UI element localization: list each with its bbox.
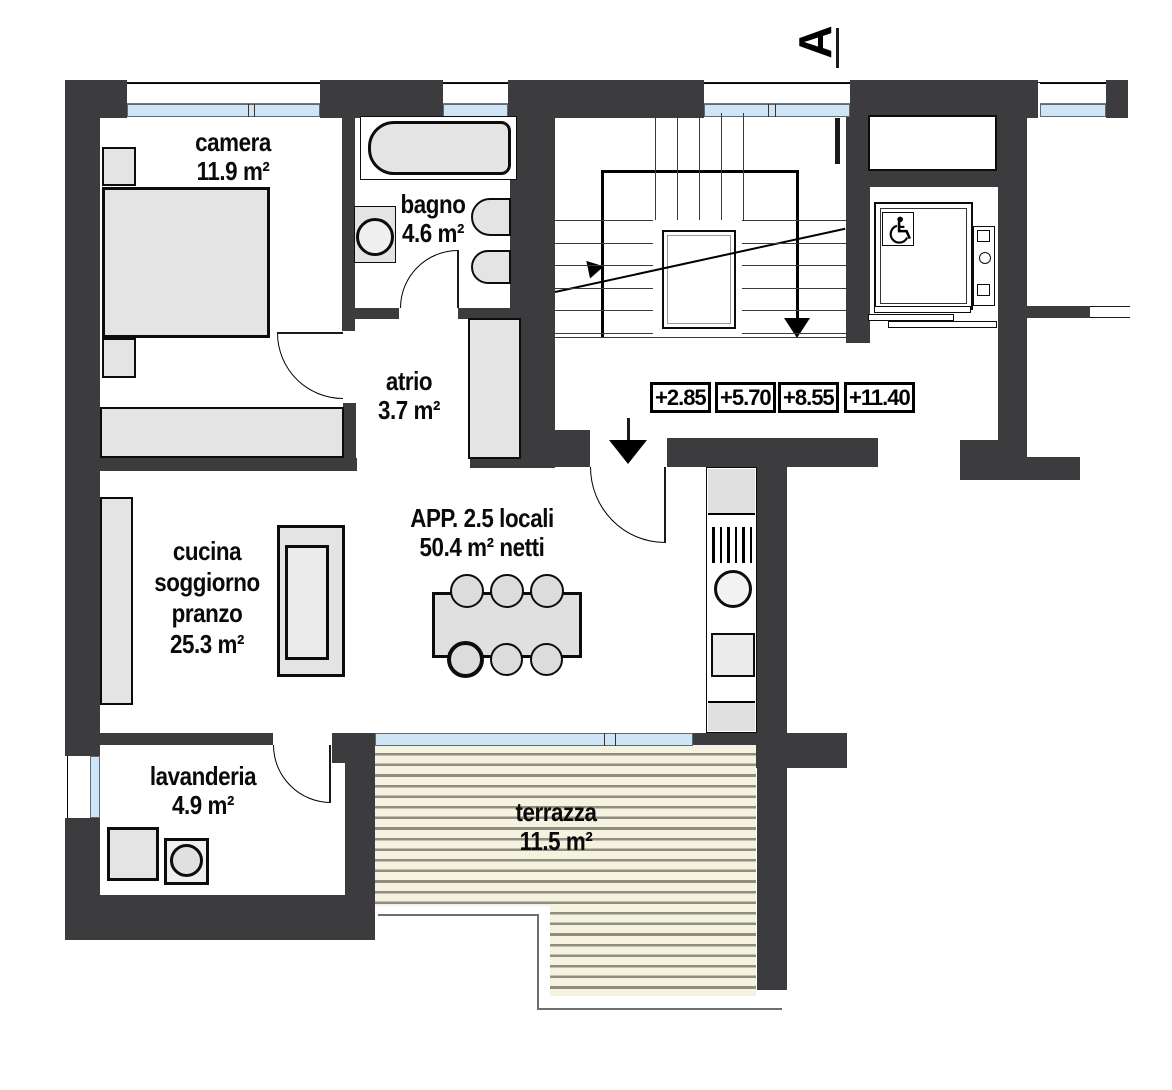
wheelchair-icon: [884, 214, 912, 244]
wall: [868, 170, 995, 187]
wall: [667, 438, 878, 467]
stair-tread: [555, 220, 653, 221]
section-line: [835, 118, 840, 164]
wall: [1027, 457, 1080, 480]
window-terrace-glass: [375, 733, 693, 746]
level-badge: +5.70: [715, 382, 776, 413]
door-arc-entrance: [590, 467, 665, 543]
room-name: bagno: [401, 190, 466, 219]
dresser-bench: [100, 407, 344, 458]
chair: [450, 574, 484, 608]
dryer: [107, 827, 159, 881]
room-label-terrazza: terrazza 11.5 m²: [515, 798, 596, 856]
nightstand: [102, 147, 136, 186]
window-lavanderia: [67, 756, 90, 818]
section-line: [836, 28, 839, 68]
stair-tread: [742, 310, 850, 311]
room-area: 25.3 m²: [154, 629, 259, 660]
stair-tread: [699, 113, 700, 220]
door-leaf-camera: [277, 332, 343, 334]
room-label-cucina: cucina soggiorno pranzo 25.3 m²: [154, 536, 259, 660]
door-leaf-lavanderia: [329, 745, 331, 803]
sofa-seat: [285, 545, 329, 660]
elevator-door-panel: [888, 321, 997, 328]
nightstand: [102, 338, 136, 378]
stair-void-inner: [667, 235, 731, 324]
terrace-deck: [375, 745, 756, 996]
room-name: pranzo: [154, 598, 259, 629]
room-area: 4.6 m²: [401, 219, 466, 248]
kitchen-appliance: [708, 469, 755, 515]
window-camera: [127, 83, 320, 104]
chair: [530, 643, 563, 676]
room-area: 11.9 m²: [195, 157, 271, 186]
apartment-title: APP. 2.5 locali: [410, 504, 554, 533]
door-leaf-entrance: [664, 467, 666, 543]
window-bagno: [443, 83, 508, 104]
room-name: atrio: [378, 367, 440, 396]
chair: [530, 574, 564, 608]
stair-path-line: [796, 170, 799, 322]
wall: [1106, 80, 1128, 118]
apartment-label: APP. 2.5 locali 50.4 m² netti: [410, 504, 554, 562]
wall: [343, 403, 356, 459]
cabinet: [100, 497, 133, 705]
window-top-right-glass: [1040, 104, 1106, 117]
toilet: [471, 198, 511, 236]
door-arc-lavanderia: [273, 745, 331, 803]
stair-tread: [555, 310, 653, 311]
stair-tread: [555, 333, 653, 334]
washbasin: [356, 218, 394, 256]
level-badge: +8.55: [778, 382, 839, 413]
kitchen-hob: [711, 633, 755, 677]
level-value: +11.40: [849, 385, 910, 410]
level-badge: +11.40: [844, 382, 915, 413]
room-name: soggiorno: [154, 567, 259, 598]
entrance-arrow-icon: [609, 440, 647, 464]
wall: [998, 113, 1027, 480]
room-area: 3.7 m²: [378, 396, 440, 425]
stair-tread: [721, 113, 722, 220]
door-arc-camera: [277, 333, 343, 399]
drainer-line: [727, 527, 730, 563]
kitchen-appliance: [708, 701, 755, 731]
stair-tread: [742, 243, 850, 244]
stair-tread: [742, 265, 850, 266]
stair-path-line: [601, 170, 604, 337]
wall: [332, 733, 375, 763]
room-label-atrio: atrio 3.7 m²: [378, 367, 440, 425]
elevator-duct: [868, 115, 997, 171]
room-name: terrazza: [515, 798, 596, 827]
drainer-line: [720, 527, 723, 563]
wall: [100, 458, 357, 471]
slab-edge-line: [537, 914, 539, 1010]
window-mullion: [604, 733, 616, 746]
stair-tread: [655, 113, 656, 220]
window-camera-glass: [127, 104, 320, 117]
slab-edge-line: [378, 914, 539, 916]
bidet: [471, 250, 511, 284]
stair-path-line: [601, 170, 799, 173]
stair-tread: [742, 220, 850, 221]
wall-extension-line: [1090, 317, 1130, 318]
level-value: +2.85: [655, 385, 706, 410]
wall: [320, 80, 443, 118]
window-lavanderia-glass: [90, 756, 100, 818]
wheelchair-box: [882, 212, 914, 246]
apartment-area: 50.4 m² netti: [410, 533, 554, 562]
stair-tread: [743, 113, 744, 220]
chair: [447, 641, 484, 678]
stair-tread: [677, 113, 678, 220]
chair: [490, 643, 523, 676]
room-name: lavanderia: [150, 762, 256, 791]
stair-tread: [555, 265, 653, 266]
window-mullion: [248, 104, 255, 117]
stair-tread: [555, 243, 653, 244]
room-area: 11.5 m²: [515, 827, 596, 856]
window-stairwell: [704, 83, 850, 104]
slab-edge-line: [537, 1008, 782, 1010]
level-badge: +2.85: [650, 382, 711, 413]
wall: [960, 440, 1027, 480]
room-label-lavanderia: lavanderia 4.9 m²: [150, 762, 256, 820]
closet: [468, 318, 521, 459]
room-name: cucina: [154, 536, 259, 567]
bathtub: [368, 121, 511, 175]
washing-machine-drum: [170, 844, 203, 877]
kitchen-sink: [714, 570, 752, 608]
wall: [65, 80, 100, 756]
drainer-line: [735, 527, 738, 563]
wall: [757, 467, 787, 990]
wall: [65, 895, 375, 940]
wall: [343, 308, 399, 319]
section-label: A: [791, 18, 839, 66]
stair-up-arrow-icon: [586, 258, 605, 279]
drainer-line: [742, 527, 745, 563]
stair-tread: [555, 337, 850, 338]
room-name: camera: [195, 128, 271, 157]
stair-tread: [742, 333, 850, 334]
stair-tread: [742, 288, 850, 289]
window-top-right: [1040, 83, 1106, 104]
room-label-camera: camera 11.9 m²: [195, 128, 271, 186]
door-arc-bagno: [400, 250, 458, 308]
chair: [490, 574, 524, 608]
bed: [102, 187, 270, 338]
stair-down-arrow-icon: [784, 318, 810, 338]
door-leaf-bagno: [457, 250, 459, 308]
wall: [95, 733, 273, 745]
elevator-door-panel: [868, 314, 954, 321]
floor-plan: A +2.85 +5.70 +8.55 +11.40 camera 11.9 m…: [0, 0, 1172, 1090]
elevator-door-panel: [874, 306, 971, 313]
drainer-line: [712, 527, 715, 563]
elevator-mechanism-wheel: [979, 252, 991, 264]
stair-tread: [555, 288, 653, 289]
elevator-mechanism-part: [977, 230, 990, 242]
room-area: 4.9 m²: [150, 791, 256, 820]
wall: [1027, 306, 1090, 318]
level-value: +5.70: [720, 385, 771, 410]
entrance-arrow-stem: [627, 418, 630, 440]
kitchen-drainer: [712, 527, 752, 563]
room-label-bagno: bagno 4.6 m²: [401, 190, 466, 248]
elevator-mechanism-part: [977, 284, 990, 296]
drainer-line: [750, 527, 753, 563]
wall-extension-line: [1090, 306, 1130, 307]
level-value: +8.55: [783, 385, 834, 410]
